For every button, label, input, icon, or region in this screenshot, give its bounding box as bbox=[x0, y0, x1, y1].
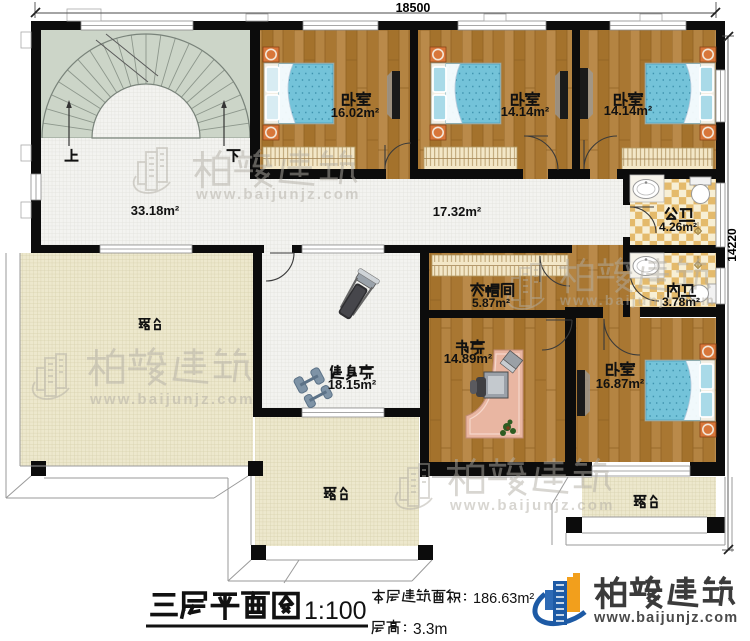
svg-text:3.78m²: 3.78m² bbox=[662, 295, 700, 309]
svg-text:186.63m²: 186.63m² bbox=[473, 591, 534, 607]
svg-text:1:100: 1:100 bbox=[304, 597, 367, 625]
svg-text:www.baijunjz.com: www.baijunjz.com bbox=[89, 391, 255, 408]
svg-text:3.3m: 3.3m bbox=[413, 621, 447, 638]
svg-text:18500: 18500 bbox=[396, 1, 431, 15]
svg-text:www.baijunjz.com: www.baijunjz.com bbox=[449, 497, 615, 514]
svg-text:16.02m²: 16.02m² bbox=[331, 105, 380, 120]
svg-text:www.baijunjz.com: www.baijunjz.com bbox=[593, 610, 738, 626]
svg-text:18.15m²: 18.15m² bbox=[328, 377, 377, 392]
svg-text:14.14m²: 14.14m² bbox=[501, 104, 550, 119]
svg-text:14.14m²: 14.14m² bbox=[604, 103, 653, 118]
svg-text:14.89m²: 14.89m² bbox=[444, 351, 493, 366]
svg-text:33.18m²: 33.18m² bbox=[131, 203, 180, 218]
svg-text:4.26m²: 4.26m² bbox=[659, 220, 697, 234]
svg-text:17.32m²: 17.32m² bbox=[433, 204, 482, 219]
svg-text:16.87m²: 16.87m² bbox=[596, 376, 645, 391]
svg-text:www.baijunjz.com: www.baijunjz.com bbox=[195, 186, 361, 203]
svg-text:5.87m²: 5.87m² bbox=[472, 296, 510, 310]
svg-text:14220: 14220 bbox=[725, 228, 739, 262]
